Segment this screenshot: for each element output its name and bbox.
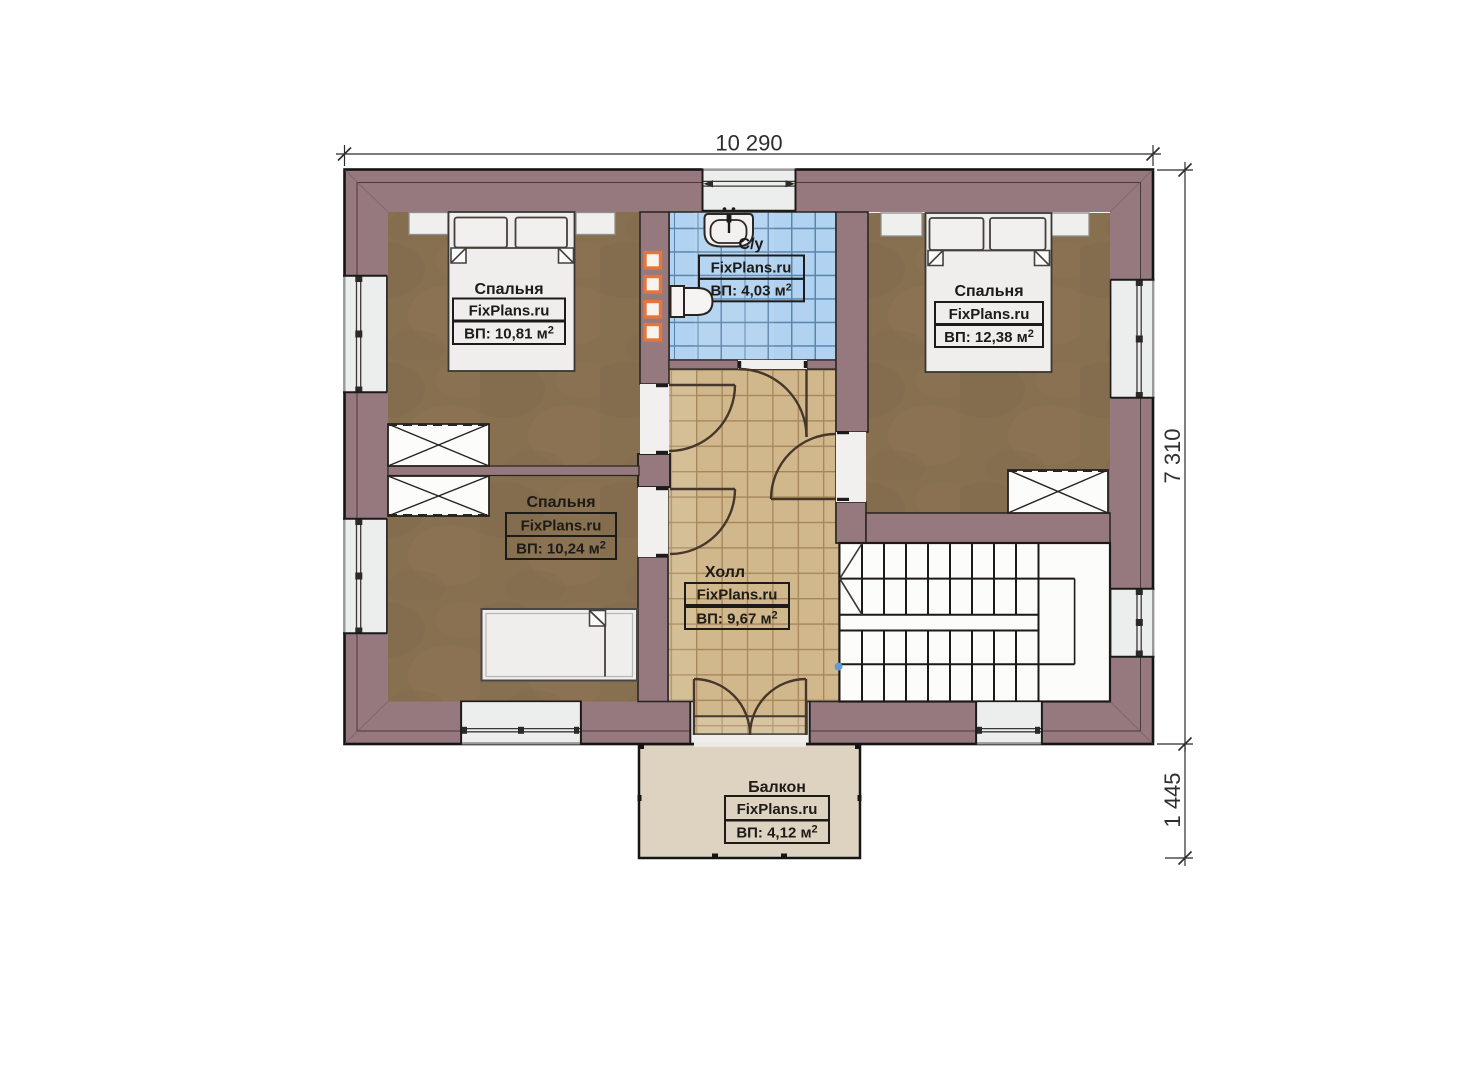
svg-text:ВП: 4,12 м2: ВП: 4,12 м2	[736, 824, 817, 842]
svg-text:10 290: 10 290	[715, 131, 782, 156]
svg-text:ВП: 10,24 м2: ВП: 10,24 м2	[516, 540, 606, 558]
svg-text:Спальня: Спальня	[474, 281, 543, 298]
svg-text:FixPlans.ru: FixPlans.ru	[949, 306, 1030, 323]
svg-text:ВП: 4,03 м2: ВП: 4,03 м2	[710, 281, 791, 299]
svg-text:FixPlans.ru: FixPlans.ru	[469, 303, 550, 320]
svg-text:FixPlans.ru: FixPlans.ru	[711, 260, 792, 277]
svg-text:1 445: 1 445	[1160, 772, 1185, 827]
svg-text:ВП: 12,38 м2: ВП: 12,38 м2	[944, 328, 1034, 346]
svg-text:Спальня: Спальня	[526, 494, 595, 511]
svg-text:FixPlans.ru: FixPlans.ru	[697, 587, 778, 604]
svg-text:С/у: С/у	[739, 236, 764, 253]
svg-text:Холл: Холл	[705, 564, 745, 581]
svg-text:ВП: 9,67 м2: ВП: 9,67 м2	[696, 610, 777, 628]
svg-text:Спальня: Спальня	[954, 283, 1023, 300]
svg-text:Балкон: Балкон	[748, 779, 806, 796]
svg-text:ВП: 10,81 м2: ВП: 10,81 м2	[464, 325, 554, 343]
svg-text:FixPlans.ru: FixPlans.ru	[521, 518, 602, 535]
svg-text:7 310: 7 310	[1160, 428, 1185, 483]
svg-text:FixPlans.ru: FixPlans.ru	[737, 801, 818, 818]
